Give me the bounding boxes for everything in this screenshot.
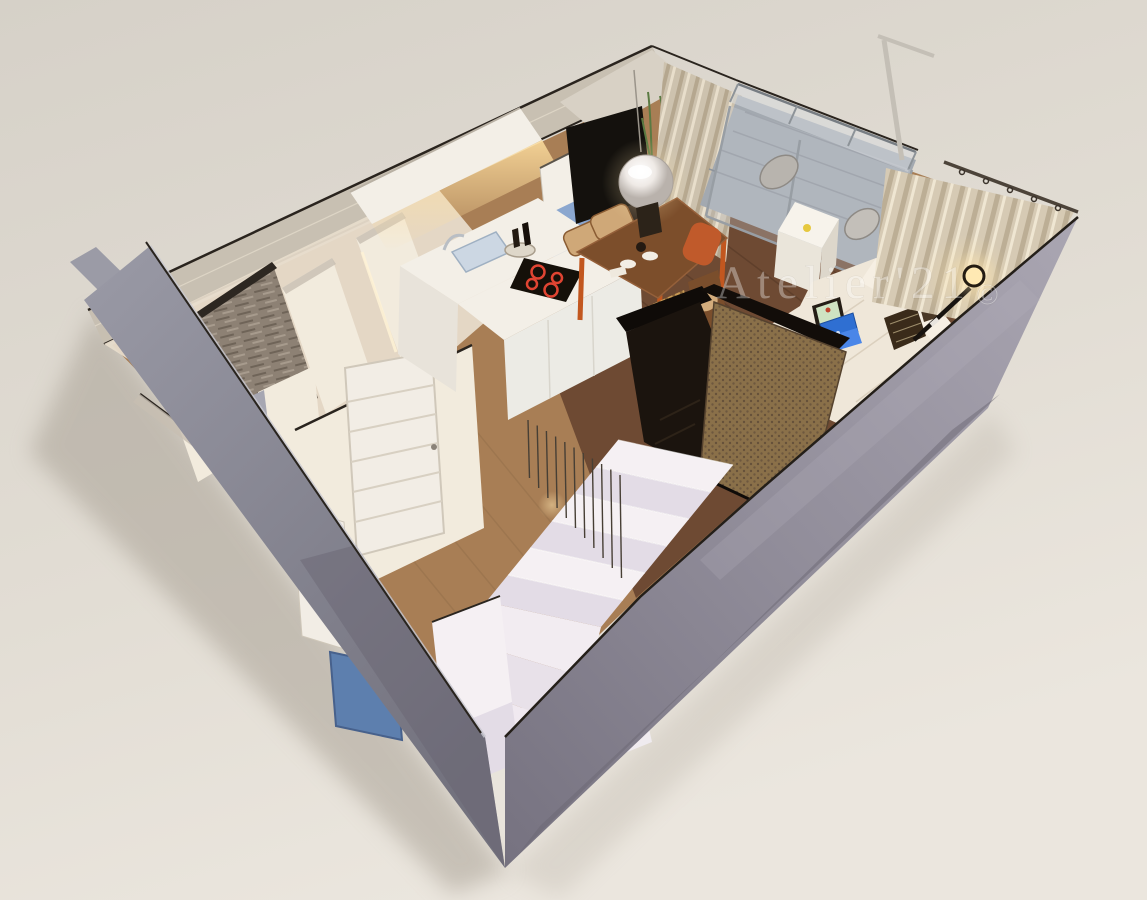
floorplan-render: Atelier'21© xyxy=(0,0,1147,900)
flower xyxy=(803,224,811,232)
interior-door xyxy=(345,352,444,556)
pendant-sphere-lamp xyxy=(619,155,673,209)
plate-2 xyxy=(642,252,658,261)
door-handle xyxy=(431,444,437,450)
serving-tray xyxy=(505,243,535,257)
watermark-text: Atelier'21© xyxy=(716,257,1006,311)
sphere-highlight xyxy=(628,165,652,179)
lamp-decor xyxy=(636,202,662,238)
table-bottle xyxy=(636,242,646,252)
